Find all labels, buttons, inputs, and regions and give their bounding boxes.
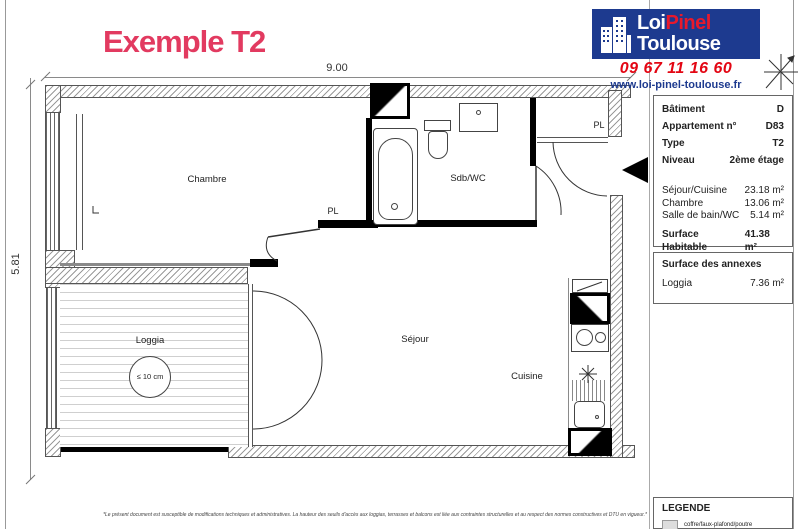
kitchen-counter-edge <box>568 278 569 428</box>
legend-box: LEGENDE coffre/faux-plafond/poutre <box>653 497 793 529</box>
surface-row: Chambre 13.06 m² <box>662 198 784 211</box>
room-label-pl-entree: PL <box>588 120 610 130</box>
surface-value: 23.18 m² <box>745 185 784 198</box>
dimension-line-left <box>30 78 31 480</box>
room-label-chambre: Chambre <box>172 174 242 185</box>
info-row: Type T2 <box>662 135 784 152</box>
entrance-arrow-icon <box>622 157 648 183</box>
washbasin-drain <box>476 110 481 115</box>
logo-text: LoiPinel Toulouse <box>637 13 720 55</box>
duct-symbol <box>370 83 410 119</box>
window-chambre <box>45 112 60 251</box>
annex-row: Loggia 7.36 m² <box>662 277 784 291</box>
coffre-swatch <box>662 520 678 529</box>
wall-left-corner <box>45 85 61 113</box>
room-label-sdb: Sdb/WC <box>438 173 498 184</box>
loggia-glass-doors <box>248 284 253 447</box>
building-icon <box>598 13 632 55</box>
page-title: Exemple T2 <box>103 24 265 60</box>
sink-drainer <box>572 380 608 401</box>
floor-plan-page: Exemple T2 9.00 5.81 ≤ 10 cm <box>0 0 800 529</box>
info-label: Type <box>662 135 685 152</box>
wall-under-placard <box>318 220 378 228</box>
legend-item-label: coffre/faux-plafond/poutre <box>684 522 752 528</box>
info-label: Bâtiment <box>662 101 705 118</box>
washbasin <box>459 103 498 132</box>
info-value: D <box>777 101 784 118</box>
info-row: Appartement n° D83 <box>662 118 784 135</box>
annexes-header: Surface des annexes <box>662 258 784 272</box>
surface-row: Séjour/Cuisine 23.18 m² <box>662 185 784 198</box>
logo-word-pinel: Pinel <box>666 12 711 34</box>
dimension-width: 9.00 <box>302 62 372 74</box>
window-loggia-left <box>46 287 57 430</box>
surface-row: Salle de bain/WC 5.14 m² <box>662 210 784 223</box>
closet-front-entry <box>537 137 608 143</box>
annex-value: 7.36 m² <box>750 277 784 291</box>
toilet-bowl <box>428 131 448 159</box>
duct-symbol <box>570 293 610 324</box>
logo-word-toulouse: Toulouse <box>637 34 720 55</box>
surface-value: 5.14 m² <box>750 210 784 223</box>
wall-chambre-loggia <box>45 267 248 284</box>
logo: LoiPinel Toulouse <box>592 9 760 59</box>
phone-number: 09 67 11 16 60 <box>592 60 760 78</box>
info-label: Niveau <box>662 152 695 169</box>
total-surface-value: 41.38 m² <box>745 228 784 254</box>
bathtub-drain <box>391 203 398 210</box>
loggia-threshold-note: ≤ 10 cm <box>129 356 171 398</box>
total-surface-row: Surface Habitable 41.38 m² <box>662 228 784 254</box>
window-chambre-inner <box>76 114 83 250</box>
info-row: Bâtiment D <box>662 101 784 118</box>
surface-label: Chambre <box>662 198 703 211</box>
coffre-box <box>572 279 608 293</box>
wall-right-lower <box>610 195 623 458</box>
sink-drain-dot <box>595 415 599 419</box>
apartment-info-box: Bâtiment D Appartement n° D83 Type T2 Ni… <box>653 95 793 247</box>
legend-item: coffre/faux-plafond/poutre <box>662 520 784 529</box>
annexes-box: Surface des annexes Loggia 7.36 m² <box>653 252 793 304</box>
kitchen-sink <box>574 401 605 428</box>
wall-loggia-bottom-left <box>45 428 61 457</box>
room-label-loggia: Loggia <box>120 335 180 346</box>
loggia-railing <box>61 447 228 452</box>
info-value: D83 <box>766 118 784 135</box>
surface-label: Séjour/Cuisine <box>662 185 727 198</box>
room-label-pl-chambre: PL <box>322 206 344 216</box>
toilet-tank <box>424 120 451 131</box>
website-link[interactable]: www.loi-pinel-toulouse.fr <box>585 79 767 91</box>
wall-chambre-bath <box>366 118 372 224</box>
wall-bath-entry <box>530 98 536 166</box>
wall-chambre-bottom <box>60 263 252 266</box>
info-value: 2ème étage <box>730 152 784 169</box>
wall-top <box>45 85 631 98</box>
surface-label: Salle de bain/WC <box>662 210 739 223</box>
surface-value: 13.06 m² <box>745 198 784 211</box>
info-label: Appartement n° <box>662 118 737 135</box>
logo-word-loi: Loi <box>637 12 666 34</box>
total-surface-label: Surface Habitable <box>662 228 745 254</box>
room-label-sejour: Séjour <box>380 334 450 345</box>
room-label-cuisine: Cuisine <box>492 371 562 382</box>
door-jamb-chambre <box>250 259 278 267</box>
info-row: Niveau 2ème étage <box>662 152 784 169</box>
dimension-height: 5.81 <box>10 242 22 286</box>
duct-symbol <box>568 428 612 456</box>
annex-label: Loggia <box>662 277 692 291</box>
dimension-line-top <box>45 77 631 78</box>
cooktop-burner <box>595 332 606 343</box>
legend-header: LEGENDE <box>662 503 784 515</box>
wall-right-upper <box>608 90 622 137</box>
cooktop-burner <box>576 329 593 346</box>
disclaimer-text: *Le présent document est susceptible de … <box>95 512 655 518</box>
info-value: T2 <box>772 135 784 152</box>
